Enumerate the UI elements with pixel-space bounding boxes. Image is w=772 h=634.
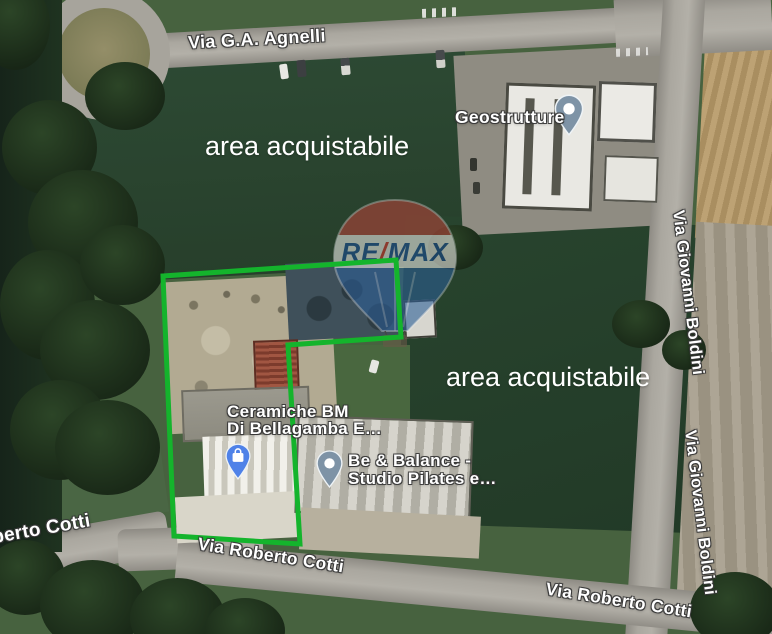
annotation-area-acquistabile-top: area acquistabile — [205, 131, 409, 162]
bebalance-place-pin-icon[interactable] — [316, 449, 343, 489]
place-label-line: Studio Pilates e… — [348, 470, 497, 488]
ceramiche-shopping-pin-icon[interactable] — [225, 443, 251, 480]
satellite-map-canvas[interactable]: RE/MAX Geostrutture Ceramiche BM Di Bell… — [0, 0, 772, 634]
place-label-line: Ceramiche BM — [227, 403, 382, 420]
place-label-geostrutture[interactable]: Geostrutture — [455, 107, 565, 128]
place-label-line: Di Bellagamba E… — [227, 420, 382, 437]
annotation-area-acquistabile-right: area acquistabile — [446, 362, 650, 393]
place-label-ceramiche[interactable]: Ceramiche BM Di Bellagamba E… — [227, 403, 382, 437]
place-label-line: Be & Balance - — [348, 452, 497, 470]
parcel-boundary-overlay — [0, 0, 772, 634]
place-label-bebalance[interactable]: Be & Balance - Studio Pilates e… — [348, 452, 497, 488]
